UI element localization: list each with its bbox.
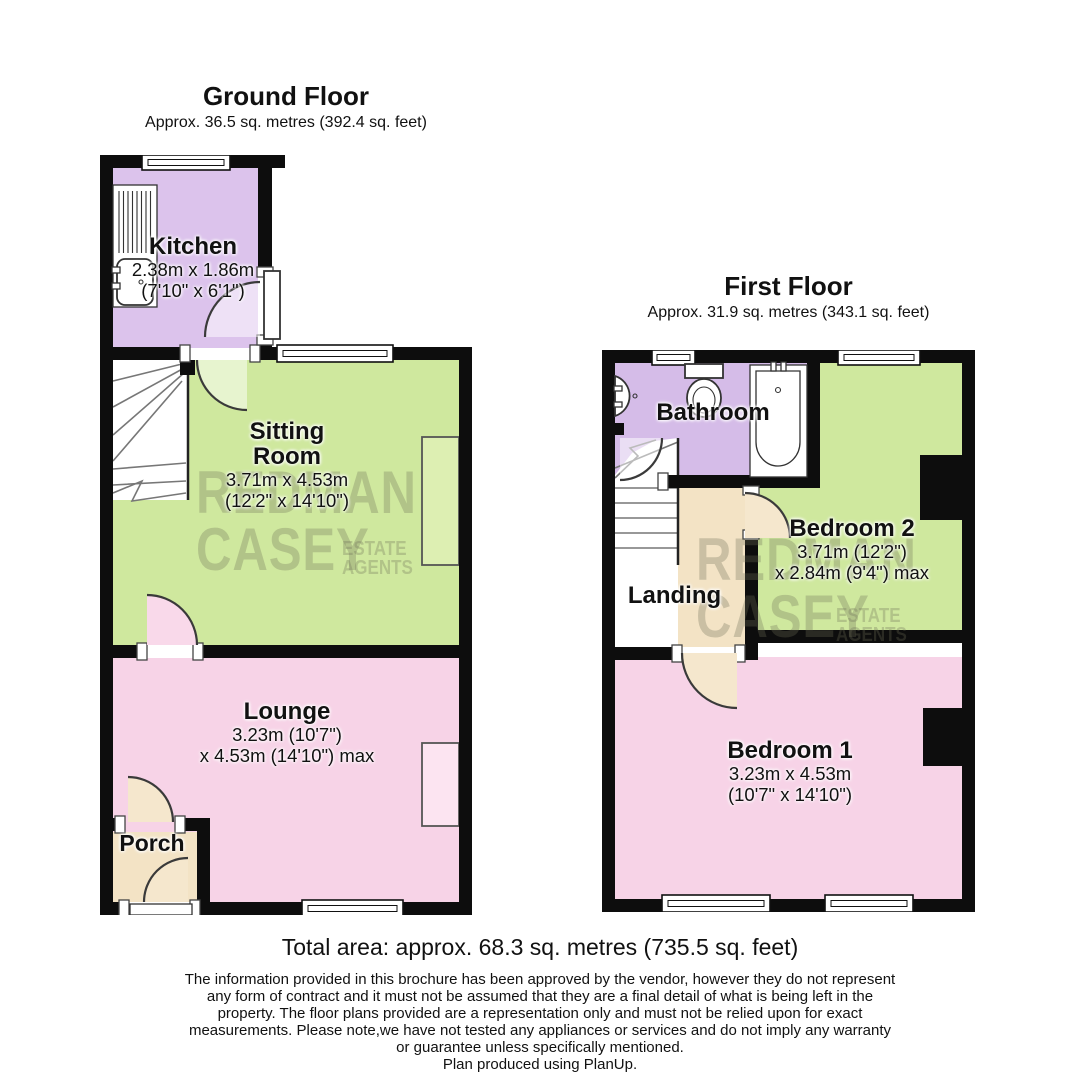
bedroom1-window-right — [825, 895, 913, 912]
ground-floor-header: Ground Floor Approx. 36.5 sq. metres (39… — [100, 82, 472, 133]
kitchen-label: Kitchen 2.38m x 1.86m (7'10" x 6'1") — [98, 234, 288, 301]
first-floor-subtitle: Approx. 31.9 sq. metres (343.1 sq. feet) — [602, 303, 975, 323]
ground-floor-subtitle: Approx. 36.5 sq. metres (392.4 sq. feet) — [100, 113, 472, 133]
first-floor-header: First Floor Approx. 31.9 sq. metres (343… — [602, 272, 975, 323]
sitting-room-name-line2: Room — [167, 444, 407, 469]
bedroom2-name: Bedroom 2 — [742, 516, 962, 541]
sitting-room-label: Sitting Room 3.71m x 4.53m (12'2" x 14'1… — [167, 419, 407, 511]
bedroom1-window-left — [662, 895, 770, 912]
lounge-dim-metric: 3.23m (10'7") — [167, 724, 407, 745]
disclaimer-line: any form of contract and it must not be … — [0, 988, 1080, 1005]
ground-floor-title: Ground Floor — [100, 82, 472, 110]
producer-text: Plan produced using PlanUp. — [0, 1056, 1080, 1073]
bedroom2-dim-imperial: x 2.84m (9'4") max — [742, 562, 962, 583]
landing-name: Landing — [612, 583, 737, 608]
bedroom1-dim-metric: 3.23m x 4.53m — [680, 763, 900, 784]
disclaimer-line: or guarantee unless specifically mention… — [0, 1039, 1080, 1056]
bedroom1-dim-imperial: (10'7" x 14'10") — [680, 784, 900, 805]
watermark-ground-tag: ESTATE AGENTS — [342, 540, 413, 578]
disclaimer-line: property. The floor plans provided are a… — [0, 1005, 1080, 1022]
bedroom1-name: Bedroom 1 — [680, 738, 900, 763]
kitchen-dim-imperial: (7'10" x 6'1") — [98, 280, 288, 301]
total-area-text: Total area: approx. 68.3 sq. metres (735… — [0, 934, 1080, 960]
sitting-room-dim-imperial: (12'2" x 14'10") — [167, 490, 407, 511]
porch-label: Porch — [108, 831, 196, 856]
lounge-window — [302, 900, 403, 915]
lounge-name: Lounge — [167, 699, 407, 724]
bathroom-label: Bathroom — [623, 400, 803, 425]
watermark-ground-tag-line2: AGENTS — [342, 559, 413, 578]
first-floor-title: First Floor — [602, 272, 975, 300]
kitchen-dim-metric: 2.38m x 1.86m — [98, 259, 288, 280]
lounge-label: Lounge 3.23m (10'7") x 4.53m (14'10") ma… — [167, 699, 407, 766]
bedroom1-label: Bedroom 1 3.23m x 4.53m (10'7" x 14'10") — [680, 738, 900, 805]
lounge-dim-imperial: x 4.53m (14'10") max — [167, 745, 407, 766]
lounge-alcove — [422, 743, 459, 826]
floorplan-page: Ground Floor Approx. 36.5 sq. metres (39… — [0, 0, 1080, 1080]
bathroom-name: Bathroom — [623, 400, 803, 425]
landing-label: Landing — [612, 583, 737, 608]
kitchen-name: Kitchen — [98, 234, 288, 259]
watermark-first-tag: ESTATE AGENTS — [836, 607, 907, 645]
disclaimer-block: The information provided in this brochur… — [0, 971, 1080, 1056]
disclaimer-line: measurements. Please note,we have not te… — [0, 1022, 1080, 1039]
sitting-room-dim-metric: 3.71m x 4.53m — [167, 469, 407, 490]
bedroom1-chimney-breast — [923, 708, 962, 766]
kitchen-window — [142, 155, 230, 170]
bedroom2-dim-metric: 3.71m (12'2") — [742, 541, 962, 562]
porch-name: Porch — [108, 831, 196, 856]
sitting-room-window — [277, 345, 393, 362]
sitting-room-alcove — [422, 437, 459, 565]
bedroom2-chimney-breast — [920, 455, 962, 520]
disclaimer-line: The information provided in this brochur… — [0, 971, 1080, 988]
sitting-room-name-line1: Sitting — [167, 419, 407, 444]
bathroom-window — [652, 350, 695, 365]
watermark-first-tag-line2: AGENTS — [836, 626, 907, 645]
bedroom2-window — [838, 350, 920, 365]
bedroom2-label: Bedroom 2 3.71m (12'2") x 2.84m (9'4") m… — [742, 516, 962, 583]
